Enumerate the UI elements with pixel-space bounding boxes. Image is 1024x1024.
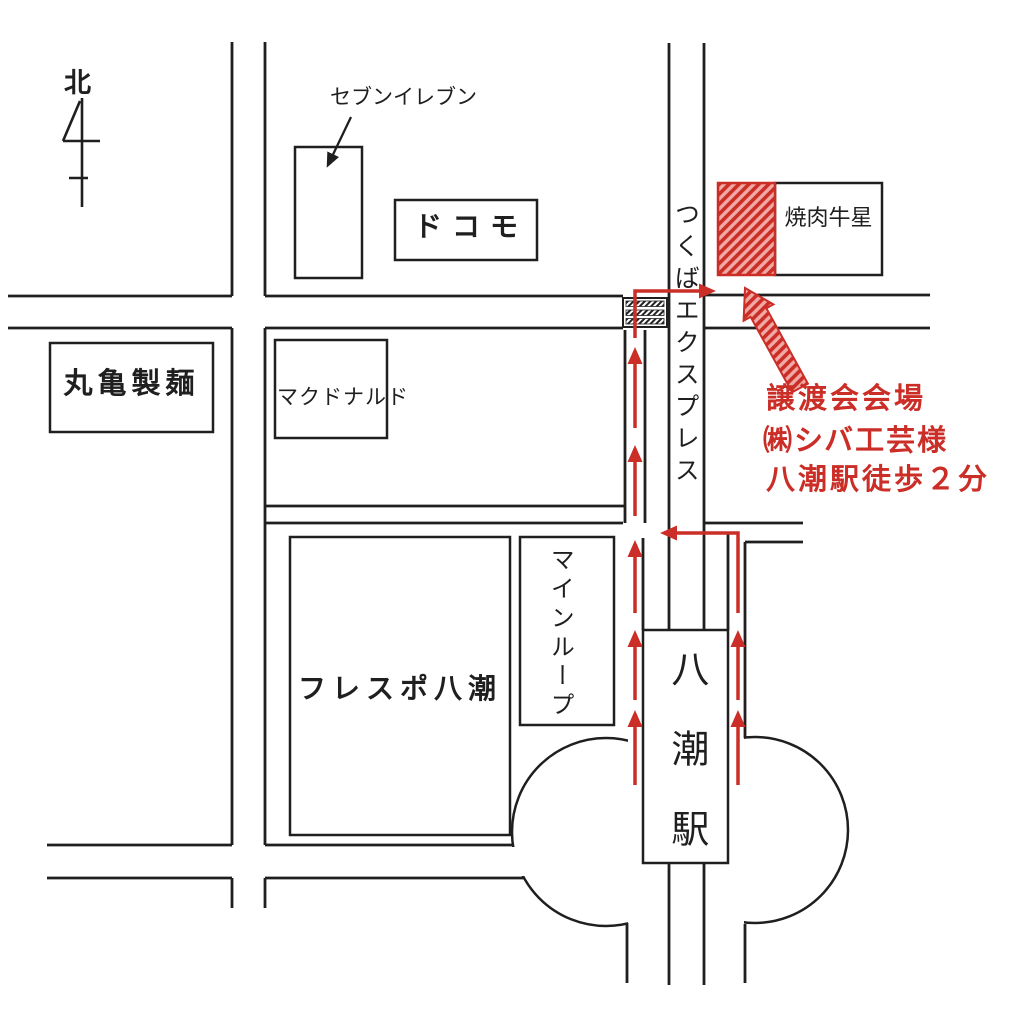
venue-block-icon: [718, 183, 775, 275]
station-name-label: 八潮駅: [666, 649, 706, 889]
railroad-crossing-icon: [623, 298, 667, 327]
map-drawing: [0, 0, 1024, 1024]
station-area-map: 北 セブンイレブン ドコモ 焼肉牛星 つくばエクスプレス 丸亀製麺 マクドナルド…: [0, 0, 1024, 1024]
venue-note-line1: 譲渡会会場: [766, 383, 926, 413]
mainloop-label: マインループ: [547, 547, 572, 721]
railway-name-label: つくばエクスプレス: [672, 201, 698, 489]
venue-note-line2: ㈱シバ工芸様: [763, 425, 948, 455]
seven-eleven-building: [295, 147, 362, 278]
seven-eleven-label: セブンイレブン: [330, 86, 477, 108]
frespo-label: フレスポ八潮: [290, 674, 510, 703]
mcdonalds-label: マクドナルド: [277, 386, 409, 408]
yakiniku-label: 焼肉牛星: [775, 207, 882, 230]
north-arrow-icon: [63, 98, 100, 207]
compass-north-label: 北: [64, 70, 91, 98]
venue-pointer-arrow-icon: [744, 288, 808, 392]
docomo-label: ドコモ: [395, 212, 537, 241]
venue-note-line3: 八潮駅徒歩２分: [766, 464, 990, 494]
marugame-label: 丸亀製麺: [50, 368, 213, 398]
